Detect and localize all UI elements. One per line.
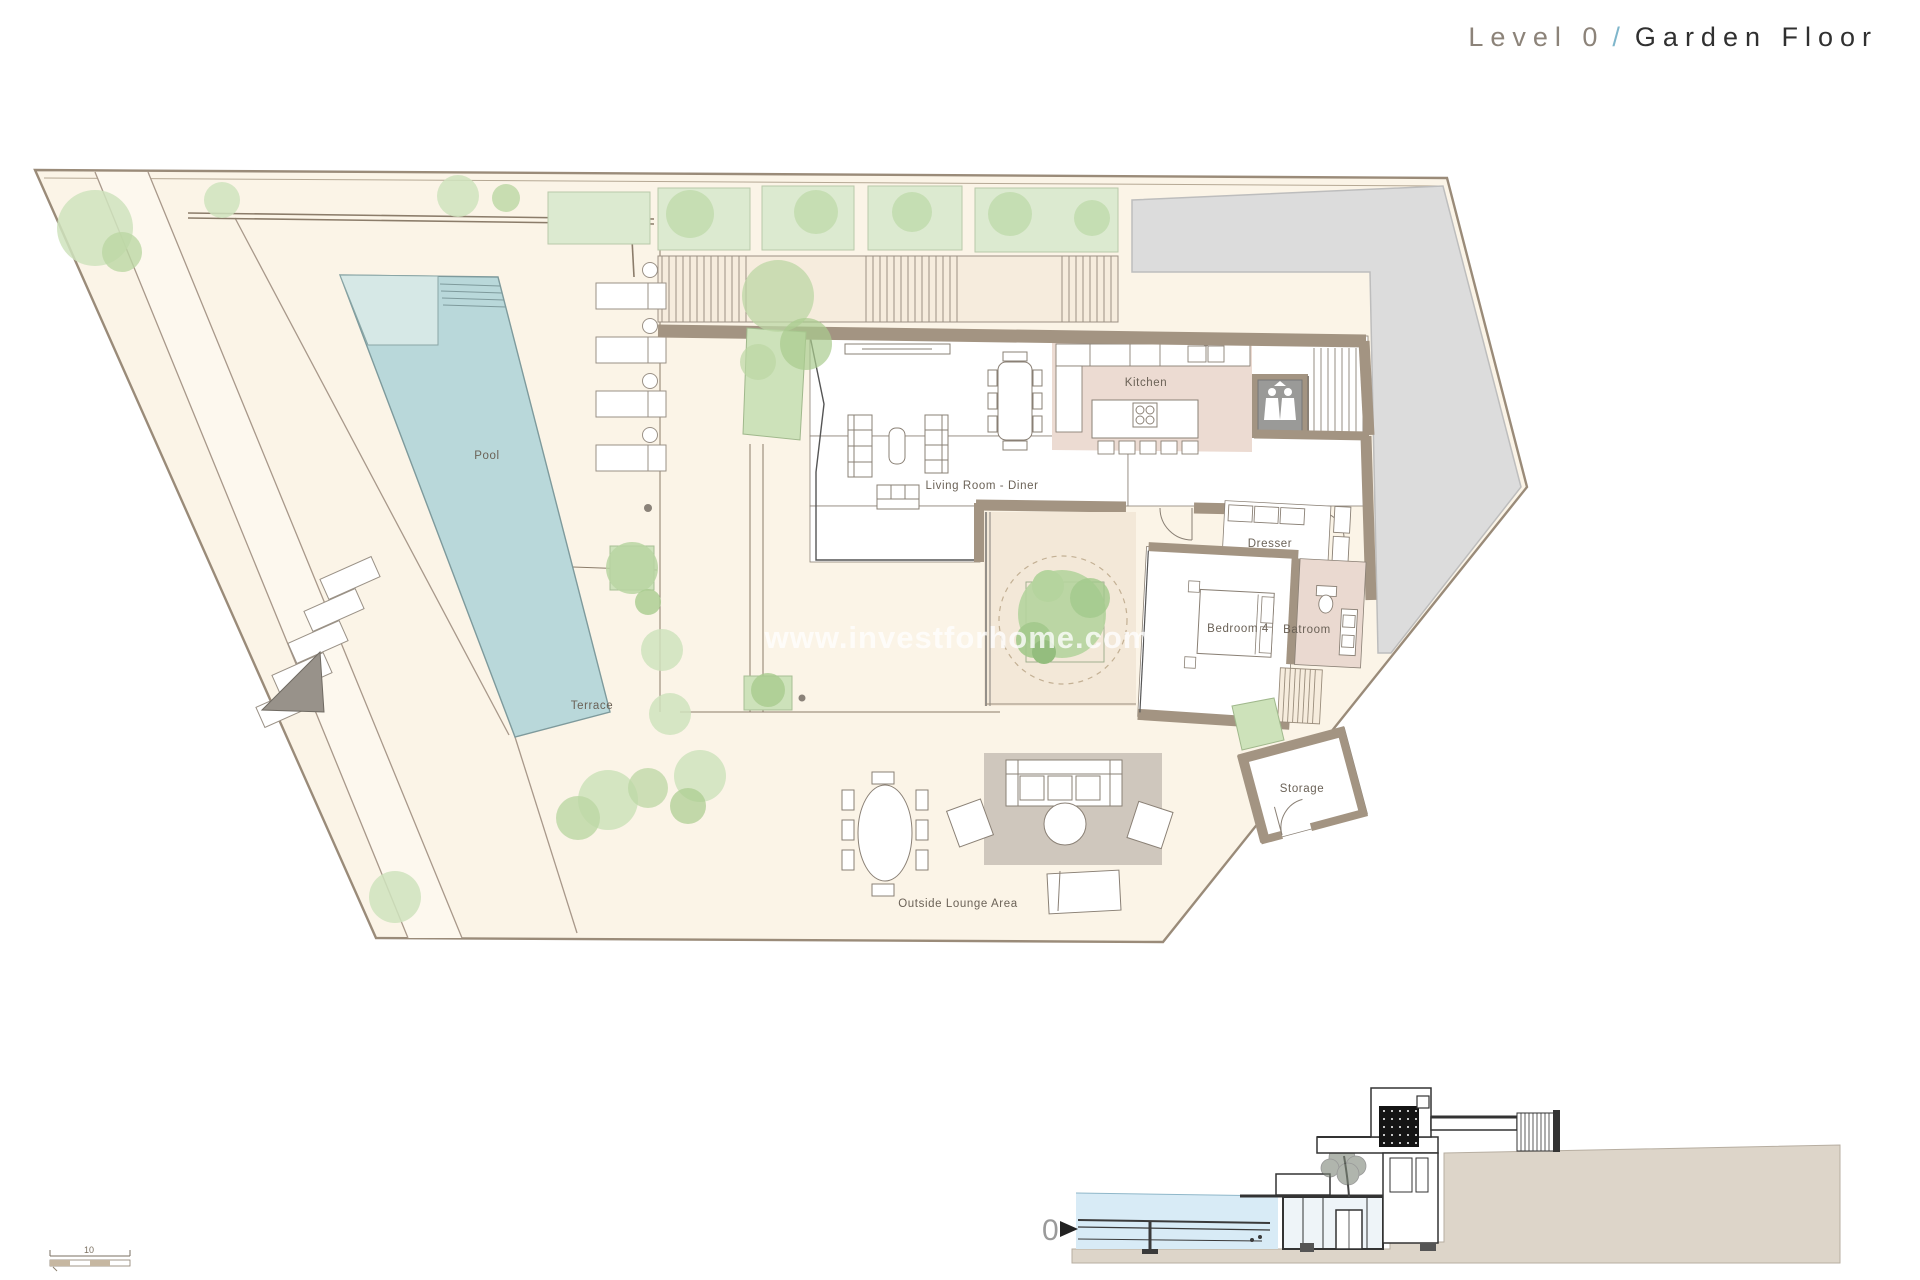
daybed	[1047, 870, 1121, 914]
deck-dot-2	[799, 695, 806, 702]
section-drawing: 0	[1042, 1088, 1840, 1263]
section-right-louvers	[1517, 1110, 1560, 1152]
dresser-label: Dresser	[1248, 538, 1292, 550]
bedroom4-label: Bedroom 4	[1207, 623, 1269, 635]
elevator	[1252, 374, 1308, 438]
floor-plan-svg: Pool Terrace Living Room - Diner Kitchen…	[0, 0, 1920, 1280]
title-floor-name: Garden Floor	[1635, 22, 1878, 52]
bar-stools	[1098, 441, 1198, 454]
kitchen-label: Kitchen	[1125, 377, 1168, 389]
pool-label: Pool	[474, 450, 499, 462]
courtyard-patio	[984, 512, 1136, 706]
round-table	[1044, 803, 1086, 845]
page-title: Level 0/Garden Floor	[1468, 22, 1878, 53]
planter-box	[548, 192, 650, 244]
title-separator: /	[1604, 22, 1635, 52]
level-marker-arrow-icon	[1060, 1221, 1078, 1237]
sofa-bottom	[877, 485, 919, 509]
exterior-steps	[1278, 668, 1323, 724]
living-room-label: Living Room - Diner	[925, 480, 1038, 492]
lounge-sofa	[1006, 760, 1122, 806]
scale-bar: 10	[50, 1245, 130, 1271]
kitchen-island	[1092, 400, 1198, 454]
terrace-label: Terrace	[571, 700, 614, 712]
sofa-right	[925, 415, 948, 473]
storage-label: Storage	[1280, 783, 1324, 795]
sink-icon	[1188, 346, 1206, 362]
title-level: Level 0	[1468, 22, 1604, 52]
outside-lounge-label: Outside Lounge Area	[898, 898, 1017, 910]
bathroom-label: Batroom	[1283, 624, 1331, 636]
coffee-table	[889, 428, 905, 464]
scale-bar-label: 10	[84, 1245, 94, 1255]
sofa-left	[848, 415, 872, 477]
level-marker-text: 0	[1042, 1214, 1059, 1247]
pergola-louvers	[658, 256, 1118, 322]
page: Level 0/Garden Floor	[0, 0, 1920, 1280]
deck-dot	[644, 504, 652, 512]
watermark: www.investforhome.com	[764, 620, 1152, 655]
section-louver-grid	[1379, 1106, 1419, 1147]
section-level-marker: 0	[1042, 1214, 1078, 1247]
